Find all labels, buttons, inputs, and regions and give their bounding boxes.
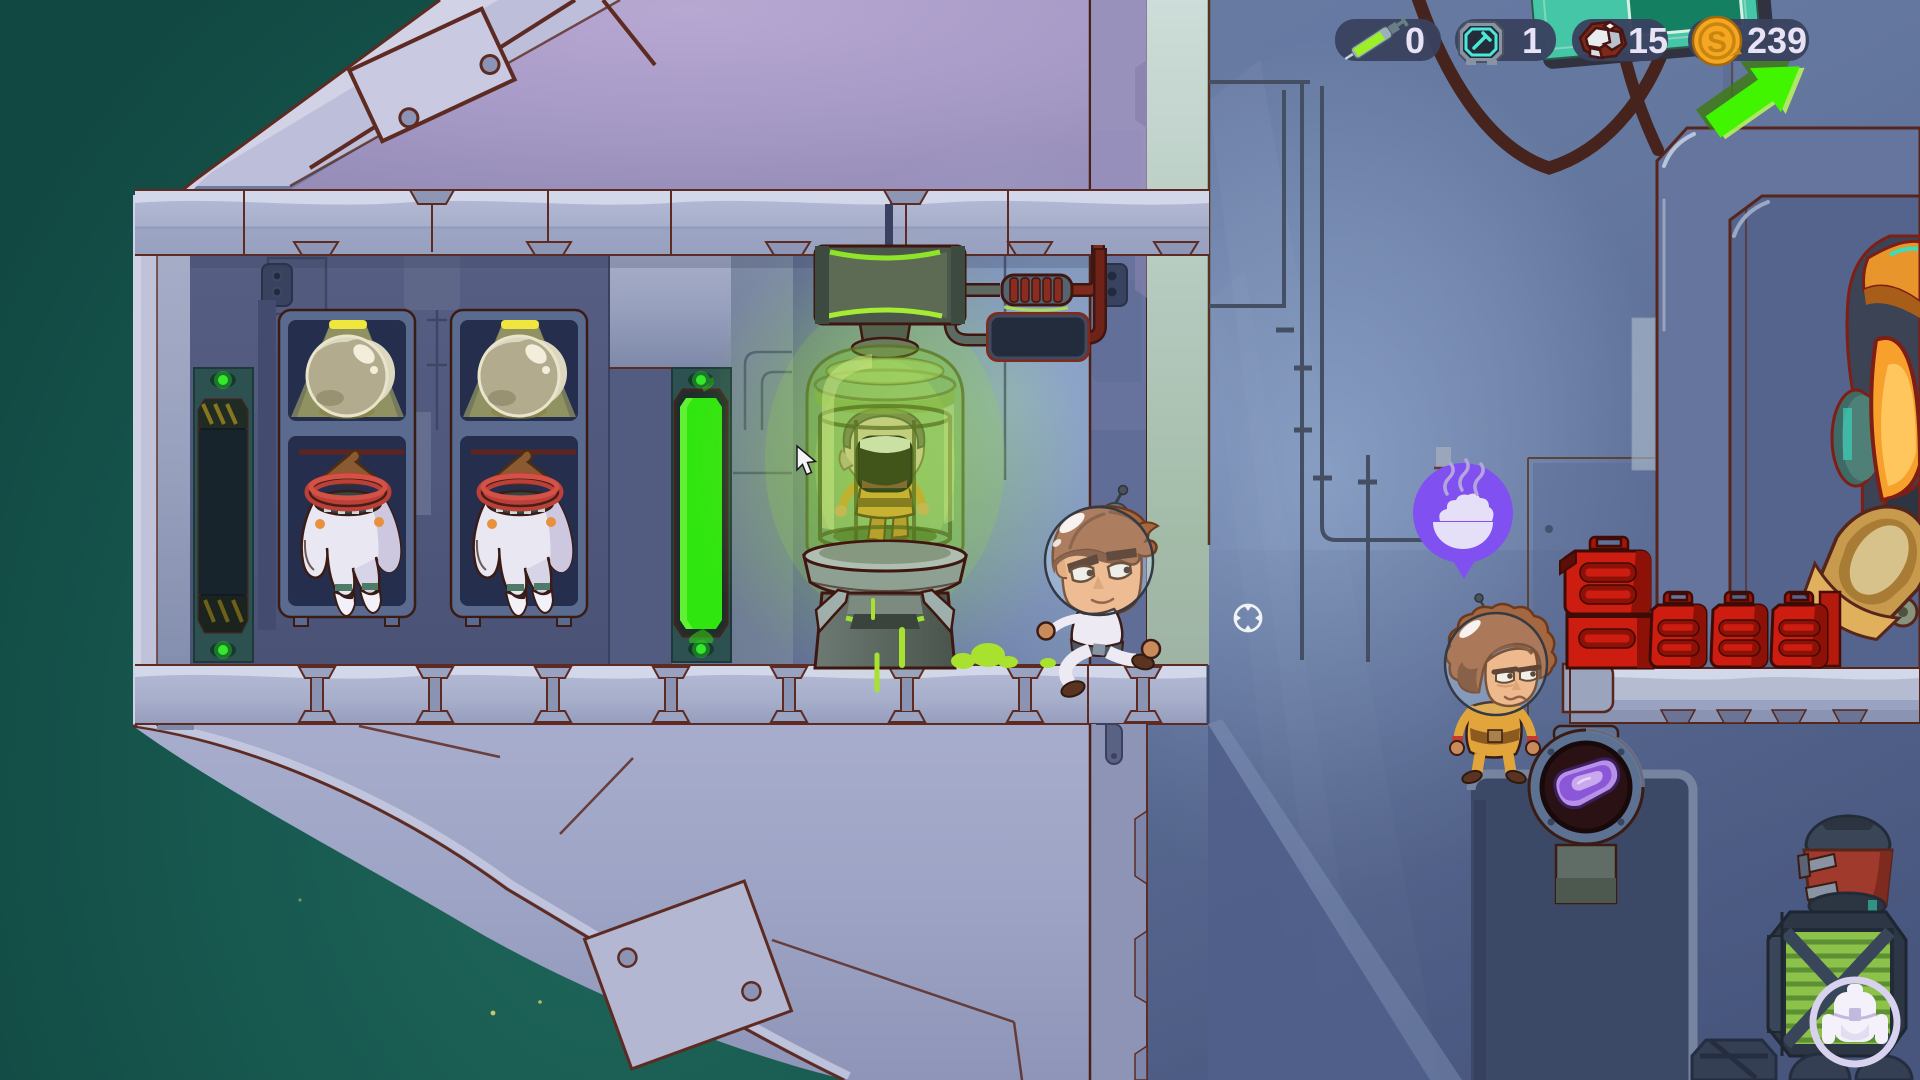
svg-text:0: 0: [1405, 20, 1425, 61]
svg-text:S: S: [1707, 26, 1727, 59]
svg-text:15: 15: [1628, 20, 1668, 61]
svg-text:1: 1: [1522, 20, 1542, 61]
svg-text:239: 239: [1747, 20, 1807, 61]
